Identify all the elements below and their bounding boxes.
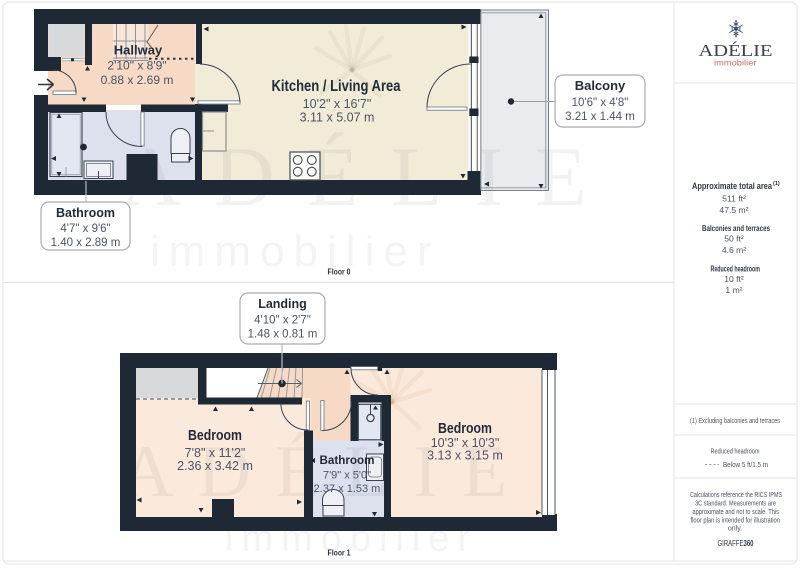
svg-text:4'10" x 2'7": 4'10" x 2'7": [254, 315, 311, 327]
svg-text:floor plan is intended for ill: floor plan is intended for illustration: [691, 518, 781, 525]
svg-text:Hallway: Hallway: [114, 43, 163, 58]
svg-text:only.: only.: [728, 526, 742, 533]
svg-text:0.88 x 2.69 m: 0.88 x 2.69 m: [101, 73, 174, 87]
svg-text:47.5 m²: 47.5 m²: [719, 205, 748, 215]
svg-text:3.11 x 5.07 m: 3.11 x 5.07 m: [300, 111, 375, 125]
svg-text:511 ft²: 511 ft²: [722, 194, 746, 204]
svg-text:Bedroom: Bedroom: [188, 428, 242, 444]
svg-text:2.37 x 1.53 m: 2.37 x 1.53 m: [314, 483, 381, 495]
svg-text:3C standard. Measurements are: 3C standard. Measurements are: [695, 501, 776, 508]
svg-text:Bathroom: Bathroom: [56, 206, 115, 220]
svg-text:Landing: Landing: [258, 297, 307, 311]
svg-text:2'10" x 8'9": 2'10" x 8'9": [107, 59, 166, 73]
svg-text:Reduced headroom: Reduced headroom: [711, 265, 761, 274]
svg-text:Floor 1: Floor 1: [328, 548, 351, 558]
svg-text:immobilier: immobilier: [714, 58, 757, 68]
svg-text:1.40 x 2.89 m: 1.40 x 2.89 m: [51, 237, 121, 249]
svg-text:4.6 m²: 4.6 m²: [722, 245, 746, 255]
svg-text:50 ft²: 50 ft²: [724, 234, 744, 244]
svg-text:10'6" x 4'8": 10'6" x 4'8": [572, 97, 629, 109]
svg-text:Calculations reference the RIC: Calculations reference the RICS IPMS: [690, 492, 782, 499]
svg-text:Kitchen / Living Area: Kitchen / Living Area: [272, 78, 401, 95]
svg-text:Approximate total area: Approximate total area: [692, 181, 773, 191]
svg-text:(1) Excluding balconies and te: (1) Excluding balconies and terraces: [690, 418, 780, 425]
svg-text:Bedroom: Bedroom: [438, 421, 492, 437]
svg-text:2.36 x 3.42 m: 2.36 x 3.42 m: [177, 459, 253, 473]
svg-text:Bathroom: Bathroom: [320, 453, 375, 467]
svg-text:(1): (1): [773, 181, 780, 187]
svg-text:10 ft²: 10 ft²: [724, 274, 744, 284]
svg-text:10'2" x 16'7": 10'2" x 16'7": [303, 97, 372, 111]
svg-text:4'7" x 9'6": 4'7" x 9'6": [60, 223, 110, 235]
svg-text:GIRAFFE360: GIRAFFE360: [718, 539, 755, 548]
svg-text:Floor 0: Floor 0: [328, 267, 351, 277]
svg-text:3.21 x 1.44 m: 3.21 x 1.44 m: [565, 111, 635, 123]
svg-text:3.13 x 3.15 m: 3.13 x 3.15 m: [427, 449, 503, 463]
svg-text:Reduced headroom: Reduced headroom: [711, 449, 760, 456]
svg-text:1 m²: 1 m²: [725, 285, 742, 295]
svg-text:approximate and not to scale.: approximate and not to scale. This: [693, 509, 780, 516]
svg-text:Below 5 ft/1.5 m: Below 5 ft/1.5 m: [723, 462, 768, 469]
svg-text:immobilier: immobilier: [150, 227, 440, 276]
svg-text:ADÉLIE: ADÉLIE: [120, 130, 619, 224]
svg-text:Balcony: Balcony: [575, 78, 626, 93]
svg-text:1.48 x 0.81 m: 1.48 x 0.81 m: [248, 329, 318, 341]
svg-text:Balconies and terraces: Balconies and terraces: [702, 224, 770, 233]
svg-text:7'9" x 5'0": 7'9" x 5'0": [323, 470, 371, 482]
svg-text:7'8" x 11'2": 7'8" x 11'2": [185, 446, 246, 460]
